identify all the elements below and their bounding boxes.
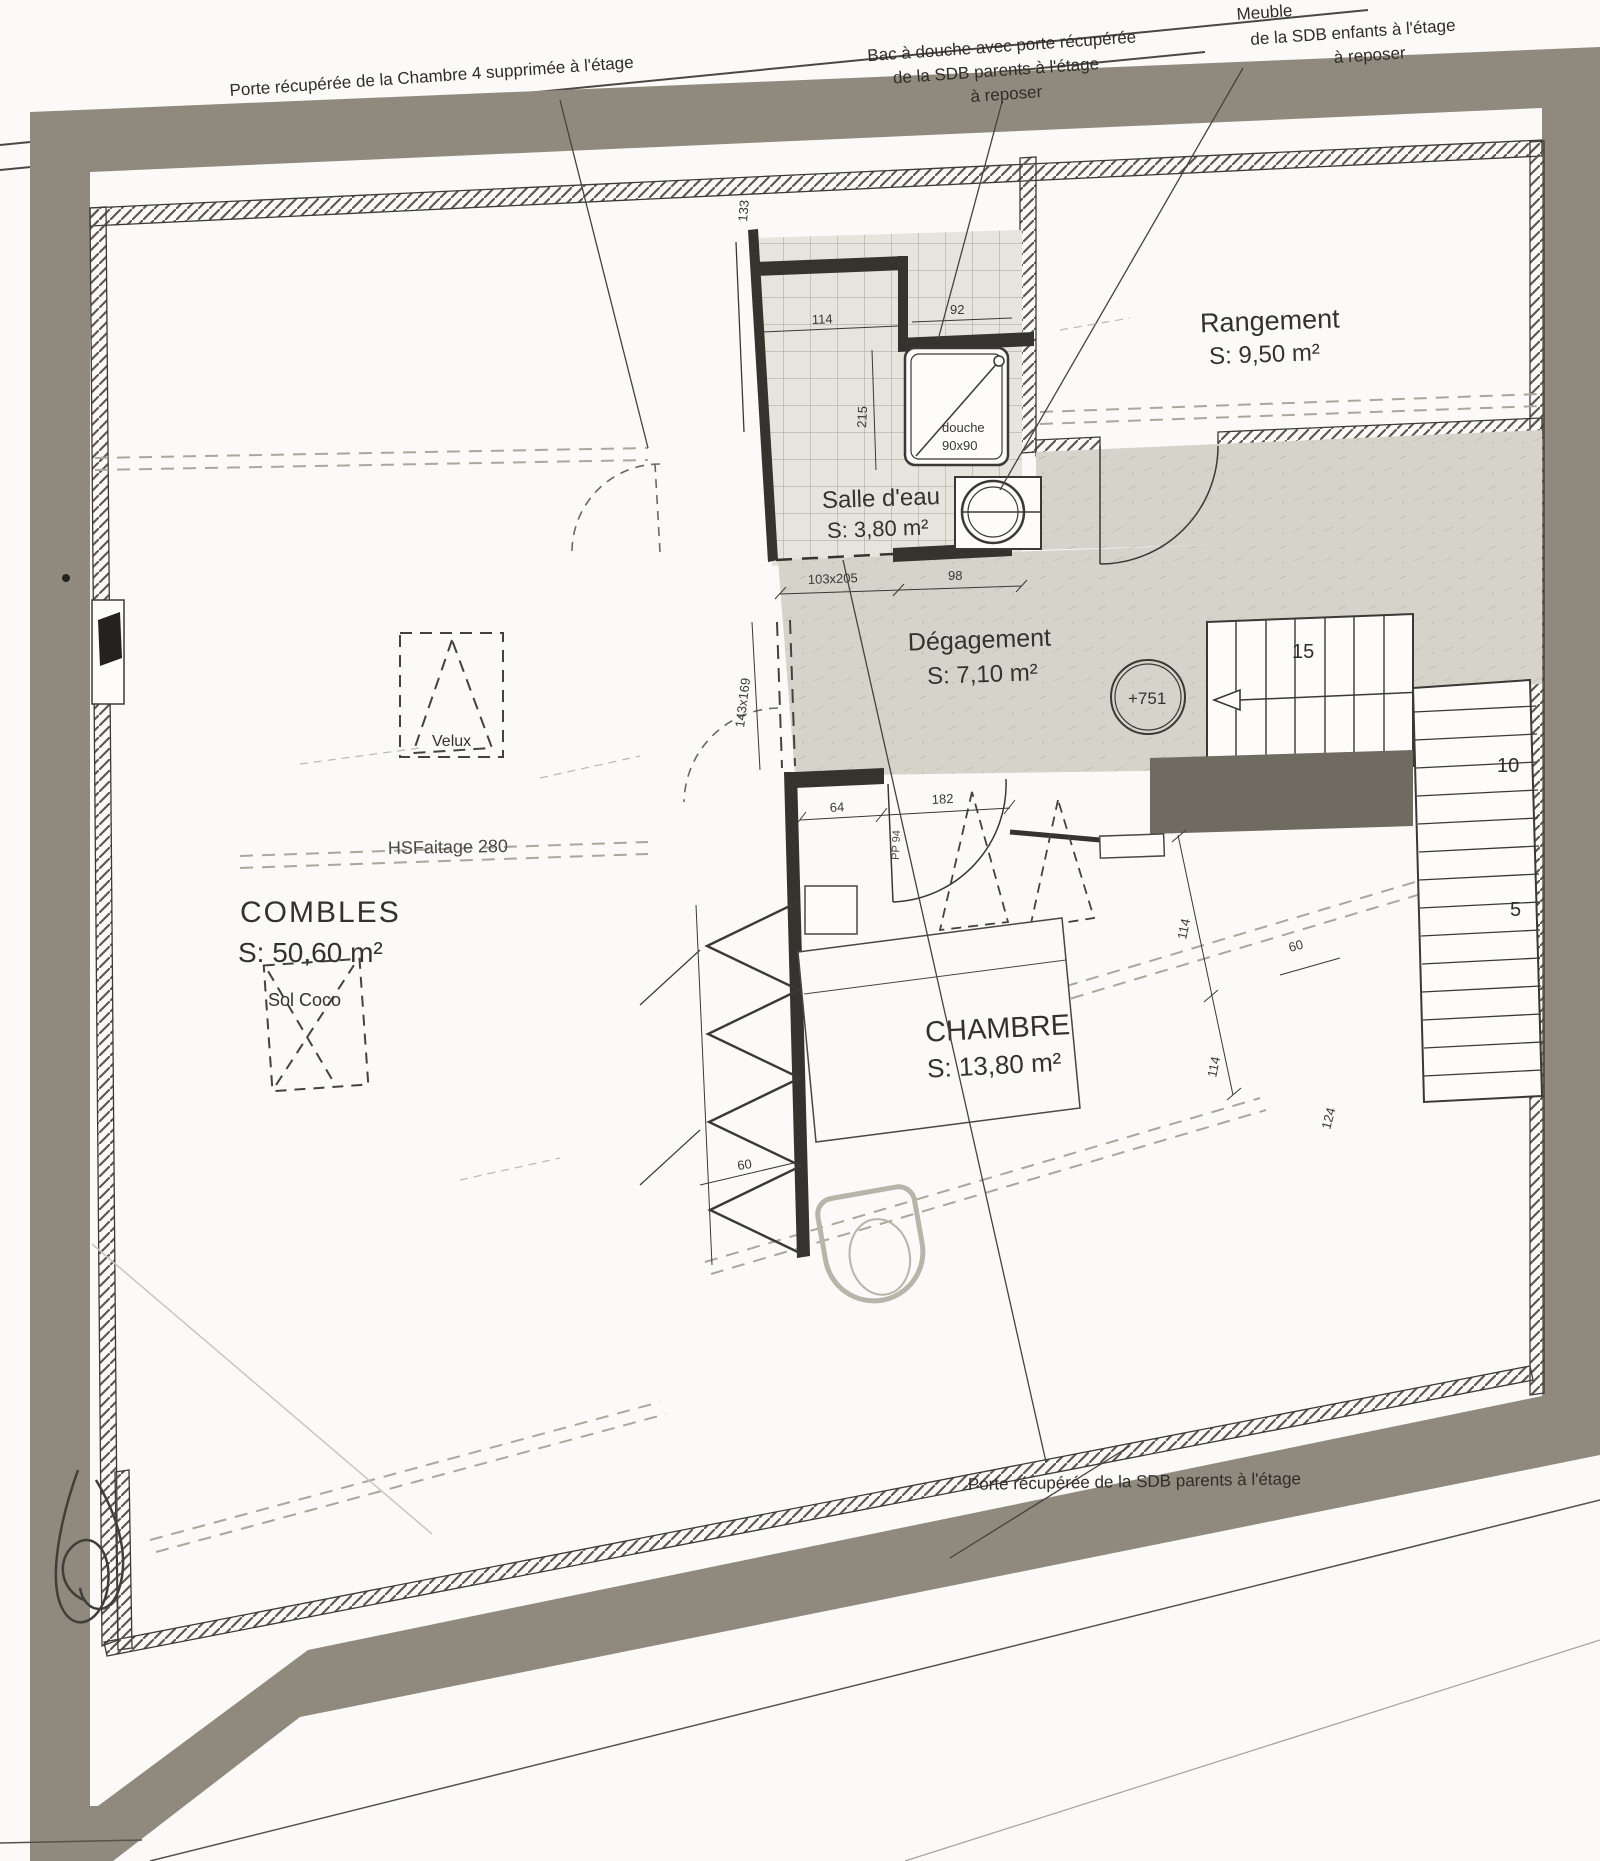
dim-bedroom-seg2: 182 [931, 791, 953, 807]
shower-label-line2: 90x90 [942, 438, 977, 453]
combles-name: COMBLES [240, 896, 401, 929]
dim-bath-right: 98 [948, 568, 962, 583]
ridge-height-label: HSFaitage 280 [388, 836, 508, 858]
shower-label-line1: douche [942, 420, 985, 435]
annotation-top-right-l1: Meuble [1236, 1, 1293, 24]
dim-bedroom-door: PP 94 [890, 830, 903, 860]
salle-eau-area: S: 3,80 m² [827, 514, 929, 543]
floor-plan-svg: 15 10 5 [0, 0, 1600, 1861]
stair-count-15: 15 [1292, 641, 1314, 663]
stair-wall-block [1150, 750, 1413, 834]
washbasin-symbol [955, 477, 1041, 549]
salle-eau-name: Salle d'eau [822, 483, 941, 514]
combles-floor: Sol Coco [268, 990, 341, 1010]
velux-label: Velux [432, 733, 471, 750]
scanned-floor-plan-page: 15 10 5 [0, 0, 1600, 1861]
combles-area: S: 50,60 m² [238, 937, 383, 968]
dim-tile-height: 215 [854, 406, 870, 428]
dim-tile-width: 114 [812, 311, 833, 327]
nightstand-symbol [805, 886, 857, 934]
degagement-name: Dégagement [907, 624, 1051, 657]
dim-wardrobe-depth: 60 [736, 1156, 752, 1173]
shelf-symbol [1100, 834, 1165, 858]
level-value: +751 [1128, 689, 1166, 708]
degagement-area: S: 7,10 m² [927, 659, 1039, 690]
rangement-name: Rangement [1199, 303, 1340, 338]
dim-shower-width: 92 [950, 302, 964, 317]
stair-count-5: 5 [1510, 899, 1521, 921]
rangement-area: S: 9,50 m² [1209, 339, 1321, 370]
shower-symbol: douche 90x90 [905, 348, 1008, 465]
dim-bedroom-seg1: 64 [829, 799, 844, 815]
dim-top-wall: 133 [735, 199, 752, 222]
stair-count-10: 10 [1497, 755, 1519, 777]
dim-bath-door: 103x205 [808, 570, 858, 587]
